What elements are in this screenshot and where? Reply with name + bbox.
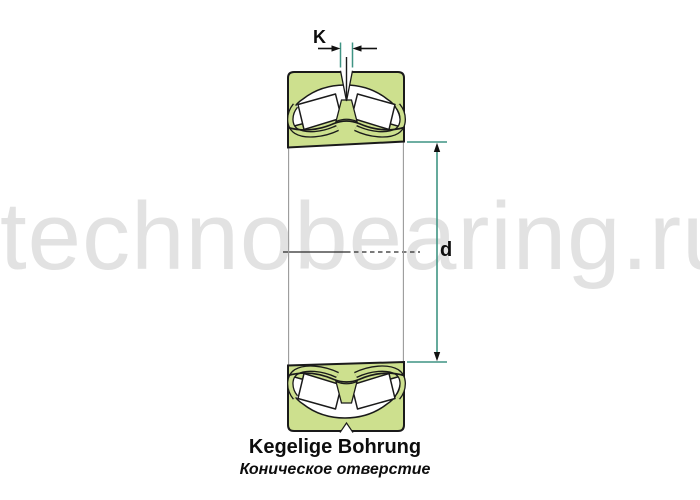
- d-arrowhead-bottom: [434, 352, 440, 361]
- bearing-diagram: [0, 0, 700, 500]
- k-arrowhead-right: [353, 45, 362, 51]
- k-arrowhead-left: [332, 45, 341, 51]
- caption-german: Kegelige Bohrung: [135, 436, 535, 459]
- d-arrowhead-top: [434, 143, 440, 152]
- page: { "watermark": { "text": "technobearing.…: [0, 0, 700, 500]
- caption-russian: Коническое отверстие: [135, 459, 535, 481]
- d-dimension-label: d: [440, 239, 452, 262]
- bearing-top-half: [288, 57, 404, 148]
- k-dimension: [318, 43, 377, 68]
- k-dimension-label: K: [313, 27, 326, 48]
- caption-block: Kegelige Bohrung Коническое отверстие: [135, 436, 535, 481]
- bearing-bottom-half: [288, 362, 404, 433]
- bore-extension-lines: [289, 142, 404, 365]
